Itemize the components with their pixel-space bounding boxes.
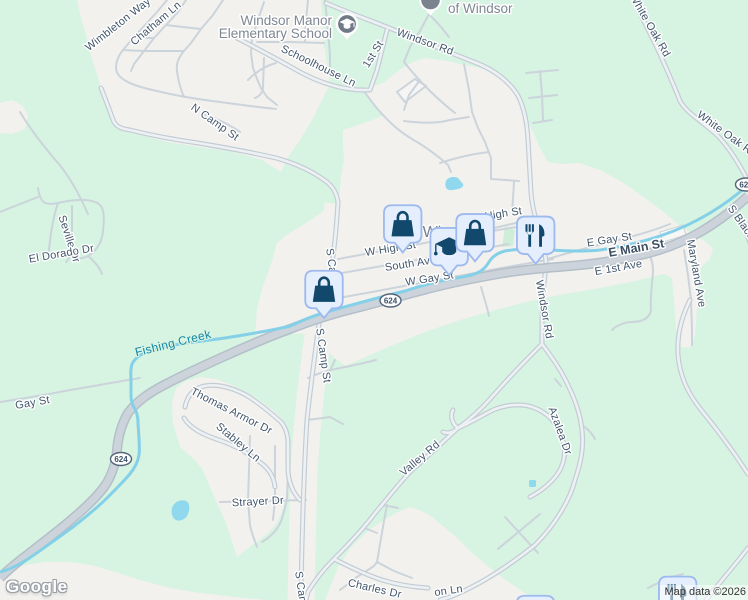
svg-text:624: 624 bbox=[739, 181, 748, 190]
svg-text:of Windsor: of Windsor bbox=[448, 1, 513, 16]
svg-text:624: 624 bbox=[114, 455, 128, 464]
svg-text:624: 624 bbox=[384, 297, 398, 306]
svg-text:Elementary School: Elementary School bbox=[219, 26, 332, 41]
